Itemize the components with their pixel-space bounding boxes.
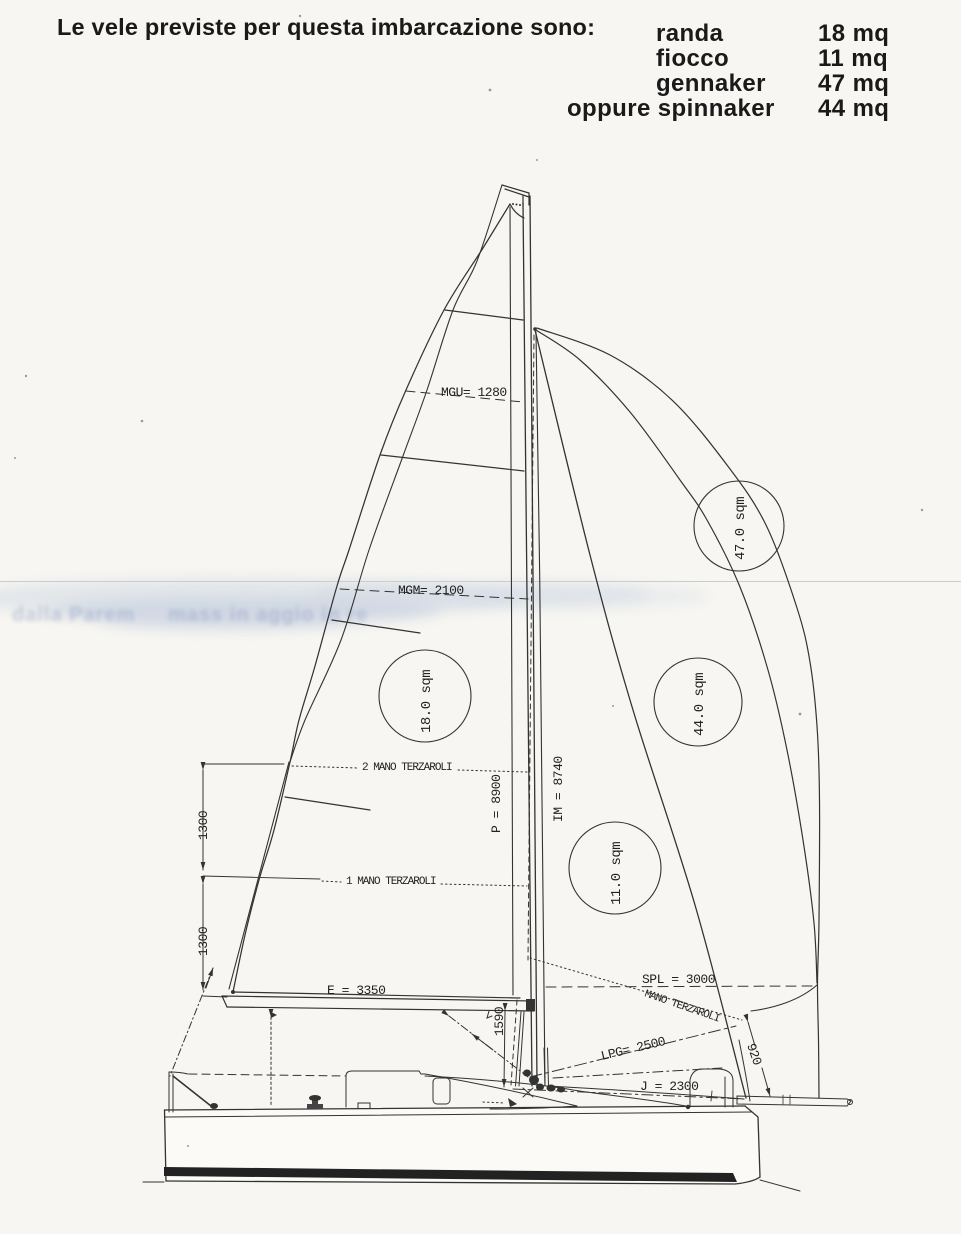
svg-text:18.0 sqm: 18.0 sqm (419, 670, 435, 733)
svg-text:MGM= 2100: MGM= 2100 (398, 583, 464, 598)
svg-text:2 MANO TERZAROLI: 2 MANO TERZAROLI (362, 762, 452, 774)
svg-text:1590: 1590 (492, 1007, 507, 1036)
svg-text:J = 2300: J = 2300 (640, 1079, 698, 1094)
svg-text:47.0 sqm: 47.0 sqm (733, 497, 749, 560)
svg-text:1300: 1300 (196, 811, 211, 840)
svg-text:MGU= 1280: MGU= 1280 (441, 385, 507, 400)
svg-text:1 MANO TERZAROLI: 1 MANO TERZAROLI (346, 876, 436, 888)
svg-text:44.0 sqm: 44.0 sqm (692, 673, 708, 736)
svg-text:11.0 sqm: 11.0 sqm (609, 842, 625, 905)
svg-text:1300: 1300 (196, 927, 211, 956)
svg-text:LPG= 2500: LPG= 2500 (599, 1034, 666, 1064)
svg-text:920: 920 (743, 1041, 764, 1067)
svg-text:IM = 8740: IM = 8740 (551, 756, 566, 822)
svg-text:MANO TERZAROLI: MANO TERZAROLI (643, 988, 721, 1025)
svg-text:P = 8900: P = 8900 (489, 775, 504, 833)
svg-text:SPL = 3000: SPL = 3000 (642, 972, 715, 987)
svg-text:E = 3350: E = 3350 (327, 983, 385, 998)
